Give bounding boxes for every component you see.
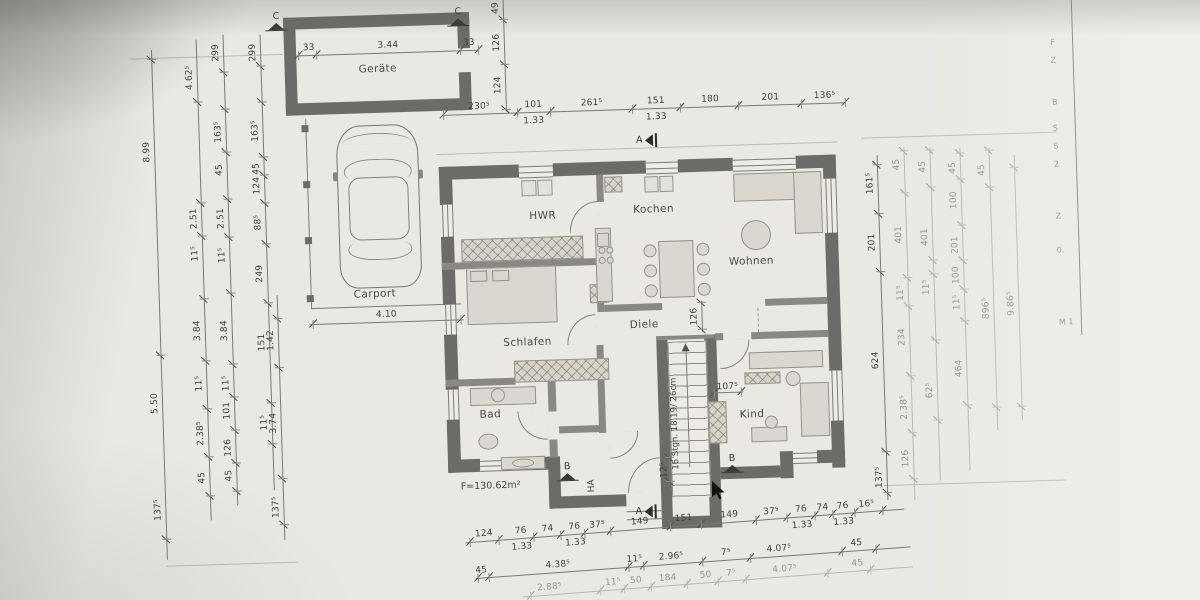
drawing-line-faint — [166, 562, 298, 567]
dim-label: 249 — [255, 265, 266, 283]
dimension-chain-right-5: 896⁵45 — [988, 148, 997, 431]
wardrobe — [800, 382, 831, 437]
dim-tick-guide — [925, 150, 934, 151]
dim-label: 180 — [701, 94, 719, 105]
dim-tick-guide — [200, 298, 209, 299]
dim-label: 1.33 — [565, 537, 587, 549]
dim-tick-guide — [267, 403, 276, 404]
dim-tick-guide — [205, 457, 214, 458]
chair — [698, 283, 711, 296]
dim-tick-guide — [224, 198, 233, 199]
dim-tick-guide — [202, 361, 211, 362]
toilet — [478, 433, 498, 450]
titleblock-fragment: S — [1053, 142, 1058, 151]
dim-label: 16⁵ — [858, 499, 874, 510]
dim-line — [151, 50, 168, 560]
dim-tick-guide — [268, 444, 277, 445]
plan-graphic — [418, 170, 423, 179]
dim-label: 107⁵ — [716, 382, 738, 393]
dim-tick-guide — [1010, 167, 1019, 168]
dim-tick-guide — [220, 71, 229, 72]
dim-label: 88⁵ — [253, 215, 263, 231]
pouf — [785, 371, 800, 386]
dim-label: 3.74 — [268, 413, 279, 434]
dim-tick-guide — [157, 355, 166, 356]
dim-label: 149 — [720, 509, 738, 520]
section-marker-bar — [654, 504, 656, 518]
dim-label: 163⁵ — [213, 121, 224, 143]
dim-label: 896⁵ — [981, 297, 992, 319]
dimension-chain-dim-12: 12⁵ — [669, 456, 670, 484]
wall-segment — [441, 237, 456, 305]
section-marker-letter: A — [636, 136, 643, 146]
bed-single — [749, 350, 823, 369]
section-marker-a: A — [635, 504, 656, 519]
titleblock-fragment: Z — [1055, 211, 1061, 220]
dim-label: 11⁵ — [626, 554, 642, 565]
dim-tick-guide — [231, 429, 240, 430]
shaft-hatch — [604, 176, 622, 193]
wall-segment — [817, 449, 845, 463]
dim-label: 137⁵ — [271, 496, 282, 518]
section-marker-c: C — [265, 12, 288, 31]
interior-wall — [765, 297, 827, 306]
dimension-chain-right-2: 1262.38⁵23411⁵40145 — [903, 147, 914, 500]
dim-tick-guide — [222, 151, 231, 152]
dim-tick-guide — [499, 19, 508, 20]
dim-label: 7⁵ — [721, 547, 731, 558]
carport-post — [301, 125, 308, 132]
dimension-chain-bottom-1: 124761.3374761.3337⁵14915114937⁵761.3374… — [466, 509, 905, 543]
dim-line — [1014, 155, 1023, 420]
dim-label: 3.84 — [219, 320, 230, 341]
door-arc — [719, 339, 750, 369]
dim-tick-guide — [883, 492, 892, 493]
dim-tick-guide — [258, 102, 267, 103]
window — [442, 205, 454, 237]
section-marker-letter: C — [272, 12, 279, 22]
wardrobe-hatch — [514, 358, 610, 383]
wall-segment — [448, 459, 480, 473]
window — [831, 370, 844, 420]
titleblock-fragment: F — [1050, 38, 1055, 47]
dim-label: 49 — [491, 2, 501, 14]
section-marker-bar — [557, 479, 579, 481]
generated-layer: GeräteCarportHWRKochenWohnenSchlafenDiel… — [0, 0, 1190, 19]
dim-label: 151 — [674, 513, 692, 524]
dim-label: 4.10 — [376, 309, 397, 320]
room-label-wohnen: Wohnen — [729, 255, 774, 268]
dim-label: 45 — [948, 162, 958, 174]
dim-tick-guide — [232, 462, 241, 463]
room-label-hwr: HWR — [529, 209, 556, 222]
wall-segment — [825, 232, 842, 370]
dim-label: 1.33 — [833, 516, 855, 528]
dim-label: 624 — [871, 351, 882, 369]
dim-label: 8.99 — [142, 142, 153, 163]
dim-tick-guide — [194, 101, 203, 102]
door-arc — [569, 201, 599, 233]
room-label-schlafen: Schlafen — [503, 336, 552, 350]
dim-line — [903, 147, 915, 500]
dim-tick-guide — [901, 192, 910, 193]
dim-label: 401 — [894, 226, 905, 244]
dim-label: 11⁵ — [922, 279, 932, 295]
interior-wall — [548, 383, 557, 411]
dim-tick-guide — [986, 186, 995, 187]
dim-label: 137⁵ — [874, 466, 885, 488]
dim-tick-guide — [929, 260, 938, 261]
dim-tick-guide — [233, 490, 242, 491]
titleblock-fragment: S — [1053, 124, 1058, 133]
appliance — [521, 180, 536, 196]
dim-label: 124 — [493, 76, 504, 94]
dim-label: 45 — [918, 161, 928, 173]
dimension-chain-left-3: 4512610111⁵3.8411⁵2.5145163⁵299 — [222, 35, 237, 506]
dim-label: 12⁵ — [659, 462, 669, 478]
chair — [645, 284, 658, 297]
dim-label: 11⁵ — [605, 577, 621, 588]
dim-label: 45 — [977, 164, 987, 176]
wall-segment — [549, 494, 626, 508]
dim-label: 45 — [215, 164, 225, 176]
interior-wall — [596, 175, 604, 202]
floorplan-photo: F=130.62m² 16 Stgn. 18.19/ 26cm HA Gerät… — [0, 0, 1200, 600]
wall-segment — [439, 167, 453, 205]
dim-label: 1.33 — [511, 541, 533, 553]
chair — [644, 264, 657, 277]
dim-label: 261⁵ — [581, 98, 603, 109]
dim-tick-guide — [221, 109, 230, 110]
dim-tick-guide — [959, 259, 968, 260]
dimension-chain-left-1: 137⁵5.508.99 — [151, 50, 167, 560]
section-arrow-icon — [644, 134, 652, 146]
dim-label: 4.07⁵ — [772, 563, 797, 575]
dim-label: 464 — [954, 359, 965, 377]
interior-wall — [549, 439, 558, 457]
section-marker-bar — [654, 133, 656, 147]
window — [519, 165, 553, 178]
floorplan-sheet: F=130.62m² 16 Stgn. 18.19/ 26cm HA Gerät… — [0, 0, 1200, 600]
section-marker-c: C — [447, 7, 470, 26]
wardrobe-hatch — [461, 236, 584, 263]
titleblock-fragment: 0. — [1057, 245, 1065, 254]
dim-tick-guide — [874, 213, 883, 214]
dim-label: 76 — [795, 504, 808, 515]
dim-tick-guide — [206, 495, 215, 496]
titleblock-edge — [1070, 0, 1082, 335]
dim-label: 45 — [850, 538, 863, 549]
dim-label: 1.33 — [791, 520, 813, 532]
dim-label: 201 — [950, 236, 961, 254]
plan-graphic — [348, 176, 410, 241]
dim-label: 74 — [541, 524, 554, 535]
door-arc — [627, 457, 661, 493]
dim-tick-guide — [907, 376, 916, 377]
dim-label: 45 — [851, 558, 864, 569]
window — [646, 161, 678, 174]
dim-label: 3.84 — [192, 320, 203, 341]
dim-tick-guide — [162, 538, 171, 539]
carport-post — [305, 237, 312, 244]
dim-tick-guide — [931, 339, 940, 340]
shaft-hatch — [708, 401, 727, 444]
dim-label: 2.38⁵ — [899, 395, 910, 420]
room-label-geraete: Geräte — [358, 62, 397, 75]
dim-line — [222, 35, 238, 506]
section-marker-b: B — [721, 454, 744, 473]
dim-tick-guide — [873, 164, 882, 165]
carport-post — [307, 295, 314, 302]
dim-label: 137⁵ — [153, 499, 164, 521]
dim-label: 11⁵ — [217, 247, 227, 263]
sink — [597, 233, 609, 247]
dim-tick-guide — [203, 409, 212, 410]
dim-label: 4.07⁵ — [766, 543, 791, 555]
dim-tick-guide — [904, 305, 913, 306]
wardrobe-hatch — [744, 371, 780, 384]
dim-tick-guide — [903, 277, 912, 278]
dim-tick-guide — [273, 318, 282, 319]
dim-label: 33 — [463, 38, 475, 48]
dashed-line — [757, 308, 759, 332]
stove-burner — [606, 247, 613, 254]
dim-label: 2.51 — [189, 208, 200, 229]
dimension-chain-bottom-2: 454.38⁵11⁵2.96⁵7⁵4.07⁵45 — [476, 546, 911, 578]
carport-post — [303, 181, 310, 188]
dim-label: 124 — [252, 177, 263, 195]
round-table — [741, 220, 772, 251]
section-arrow-icon — [644, 505, 652, 517]
room-label-kochen: Kochen — [633, 203, 674, 216]
chair — [697, 263, 710, 276]
dim-label: 11⁵ — [194, 376, 204, 392]
sofa — [793, 171, 823, 234]
dim-line — [196, 40, 212, 521]
drawing-line — [305, 119, 312, 309]
dim-tick-guide — [225, 236, 234, 237]
dim-label: 299 — [211, 44, 222, 62]
dimension-chain-garage-col: 12412649 — [503, 0, 507, 112]
dim-tick-guide — [876, 271, 885, 272]
dim-line — [298, 50, 478, 57]
dim-label: 11⁵ — [221, 375, 231, 391]
wall-segment — [823, 155, 837, 179]
dim-tick-guide — [197, 202, 206, 203]
room-label-kind: Kind — [739, 408, 764, 421]
wall-garage — [283, 12, 469, 30]
titleblock-fragment: 2 — [1054, 160, 1059, 169]
room-label-diele: Diele — [630, 318, 659, 331]
dim-label: 101 — [222, 402, 233, 420]
interior-wall — [559, 425, 606, 433]
dim-label: 163⁵ — [250, 120, 261, 142]
dim-tick-guide — [264, 302, 273, 303]
dim-label: 11⁵ — [896, 285, 906, 301]
dimension-chain-left-5: 137⁵3.741.42 — [277, 295, 285, 540]
dim-label: 201 — [867, 233, 878, 251]
dim-tick-guide — [1018, 405, 1027, 406]
dim-tick-guide — [929, 273, 938, 274]
titleblock-fragment: Z — [1051, 56, 1057, 65]
dim-label: 1.33 — [523, 116, 544, 127]
dim-tick-guide — [993, 407, 1002, 408]
dim-line — [476, 546, 911, 579]
dim-label: 1.33 — [646, 112, 667, 123]
window — [793, 452, 817, 464]
titleblock-fragment: M 1 — [1059, 317, 1074, 326]
dim-tick-guide — [256, 65, 265, 66]
dim-tick-guide — [227, 293, 236, 294]
dim-label: 100 — [951, 266, 962, 284]
appliance — [537, 179, 552, 195]
dim-label: 2.96⁵ — [658, 551, 683, 563]
dim-label: 126 — [492, 34, 503, 52]
dim-label: 4.38⁵ — [545, 559, 570, 571]
dim-tick-guide — [502, 108, 511, 109]
room-label-carport: Carport — [354, 287, 397, 300]
dim-label: 11⁵ — [952, 294, 962, 310]
dim-tick-guide — [278, 478, 287, 479]
dimension-chain-stair-126: 126 — [701, 301, 702, 332]
area-label: F=130.62m² — [461, 480, 521, 493]
dimension-chain-right-6: 9.86⁵ — [1014, 155, 1022, 420]
dim-label: 76 — [568, 522, 581, 533]
drawing-line-faint — [884, 479, 1066, 486]
appliance — [659, 176, 673, 192]
dim-label: 126 — [689, 307, 700, 325]
dim-label: 5.50 — [150, 393, 161, 414]
section-marker-b: B — [556, 462, 579, 481]
door-arc — [517, 411, 548, 441]
section-marker-letter: B — [729, 454, 736, 464]
window — [448, 389, 460, 419]
drawing-line-faint — [861, 132, 1057, 139]
section-marker-letter: A — [636, 507, 643, 517]
dim-tick-guide — [958, 224, 967, 225]
dim-label: 136⁵ — [814, 91, 836, 102]
dim-label: 50 — [699, 570, 712, 581]
dim-label: 2.38⁵ — [196, 421, 207, 446]
dim-tick-guide — [956, 153, 965, 154]
interior-wall — [751, 330, 828, 339]
dim-tick-guide — [262, 243, 271, 244]
dimension-chain-right-3: 62⁵11⁵40145 — [929, 148, 939, 481]
stove-burner — [607, 257, 614, 264]
dim-tick-guide — [984, 149, 993, 150]
dim-tick-guide — [259, 156, 268, 157]
pillow — [470, 271, 487, 283]
window — [825, 179, 838, 233]
dim-label: 33 — [303, 43, 315, 53]
titleblock-fragment: B — [1052, 98, 1058, 107]
ha-label: HA — [587, 479, 597, 492]
dim-tick-guide — [960, 289, 969, 290]
wall-segment — [678, 158, 733, 173]
section-marker-letter: B — [564, 462, 571, 472]
dimension-chain-right-4: 46411⁵10020110045 — [959, 148, 969, 471]
dim-line — [310, 319, 464, 325]
dim-line — [929, 148, 940, 481]
dim-label: 2.88⁵ — [537, 582, 562, 594]
dim-tick-guide — [961, 321, 970, 322]
dim-label: 2.51 — [216, 208, 227, 229]
dim-label: 126 — [223, 439, 234, 457]
dim-tick-guide — [261, 202, 270, 203]
dim-tick-guide — [698, 329, 707, 330]
dim-tick-guide — [229, 363, 238, 364]
dim-tick-guide — [908, 432, 917, 433]
dim-tick-guide — [963, 405, 972, 406]
section-marker-a: A — [636, 133, 657, 148]
dim-label: 230⁵ — [468, 101, 490, 112]
car-outline — [335, 124, 422, 289]
dim-label: 299 — [248, 44, 259, 62]
door-arc — [566, 314, 596, 345]
dim-tick-guide — [882, 451, 891, 452]
wall-garage — [283, 17, 298, 115]
dim-label: 76 — [514, 526, 527, 537]
dim-label: 101 — [524, 100, 542, 111]
dim-label: 45 — [197, 472, 207, 484]
dim-tick-guide — [501, 64, 510, 65]
dimension-chain-carport-row: 4.10 — [310, 319, 464, 324]
dim-label: 7⁵ — [726, 568, 736, 579]
dim-tick-guide — [956, 179, 965, 180]
dining-table — [658, 240, 695, 298]
dim-label: 4.62⁵ — [184, 65, 195, 90]
interior-wall — [604, 303, 662, 312]
dim-label: 124 — [475, 528, 493, 539]
dimension-chain-right-1: 137⁵624201161⁵ — [877, 155, 888, 500]
dim-label: 9.86⁵ — [1006, 291, 1017, 316]
dim-label: 1.42 — [266, 330, 277, 351]
dim-label: 3.44 — [377, 40, 398, 51]
plan-graphic — [333, 172, 338, 181]
dim-label: 234 — [897, 328, 908, 346]
pillow — [492, 270, 509, 282]
dim-label: 201 — [761, 92, 779, 103]
dimension-chain-dim-107: 107⁵ — [712, 392, 743, 393]
appliance — [644, 176, 658, 192]
room-label-bad: Bad — [479, 408, 501, 421]
dim-label: 126 — [901, 449, 912, 467]
dim-label: 45 — [224, 470, 234, 482]
chair — [643, 244, 656, 257]
drawing-line — [311, 303, 461, 309]
dimension-chain-garage-row: 333.4433 — [298, 50, 478, 56]
dim-label: 401 — [920, 228, 931, 246]
dim-label: 151 — [647, 96, 665, 107]
section-marker-letter: C — [454, 7, 461, 17]
dim-label: 184 — [658, 573, 677, 584]
dim-tick-guide — [910, 478, 919, 479]
dim-tick-guide — [899, 150, 908, 151]
dim-tick-guide — [230, 396, 239, 397]
dimension-chain-left-2: 452.38⁵11⁵3.8411⁵2.514.62⁵ — [196, 40, 211, 521]
dim-tick-guide — [934, 419, 943, 420]
dim-label: 100 — [949, 191, 960, 209]
dim-label: 62⁵ — [925, 382, 935, 398]
chair — [696, 243, 709, 256]
dim-label: 37⁵ — [763, 506, 779, 517]
dim-tick-guide — [280, 524, 289, 525]
dim-label: 45 — [892, 158, 902, 170]
dim-label: 45 — [252, 163, 262, 175]
dim-tick-guide — [198, 236, 207, 237]
dim-tick-guide — [275, 367, 284, 368]
dim-tick-guide — [927, 186, 936, 187]
